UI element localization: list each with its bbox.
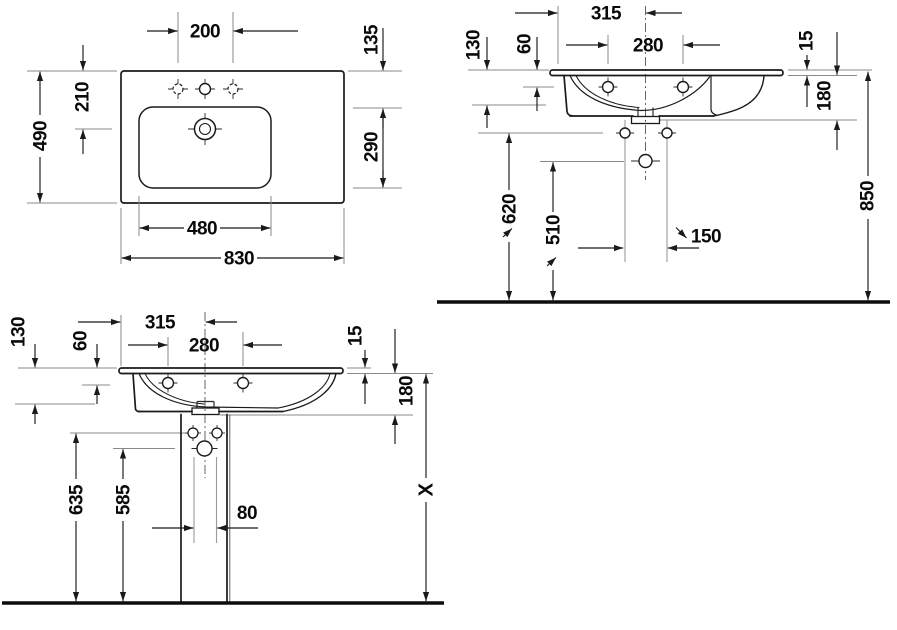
slope-arrow-ne-icon xyxy=(547,258,556,267)
slope-arrow-ne-icon xyxy=(503,229,512,238)
dim-830-label: 830 xyxy=(224,249,254,270)
dim-15-label: 15 xyxy=(797,30,818,51)
dim-180-label: 180 xyxy=(815,81,836,111)
dim-135-label: 135 xyxy=(362,24,383,55)
drain-flange xyxy=(192,408,219,415)
dim-315-label: 315 xyxy=(145,313,176,334)
wall-connection-points xyxy=(616,120,676,262)
dim-510-label: 510 xyxy=(544,215,565,245)
technical-drawing-page: 200 135 290 210 490 480 830 xyxy=(0,0,897,630)
pedestal-column xyxy=(181,415,230,602)
dim-635-label: 635 xyxy=(67,484,88,515)
waste-outlet xyxy=(639,155,652,168)
dim-290-label: 290 xyxy=(362,132,383,162)
dim-15-label: 15 xyxy=(346,325,367,346)
tap-holes xyxy=(168,79,243,99)
drain xyxy=(188,113,222,145)
dim-315-label: 315 xyxy=(591,4,622,25)
dim-130-label: 130 xyxy=(9,317,30,347)
dim-490-label: 490 xyxy=(31,121,52,151)
washbasin-dimension-diagram: 200 135 290 210 490 480 830 xyxy=(0,0,897,630)
wall-mount-view: 315 280 130 60 15 180 620 510 xyxy=(437,4,890,303)
dim-210-label: 210 xyxy=(73,82,94,112)
slope-arrow-se-icon xyxy=(676,228,687,239)
dim-80-label: 80 xyxy=(237,503,257,524)
plan-view: 200 135 290 210 490 480 830 xyxy=(27,12,402,270)
dim-130-label: 130 xyxy=(464,30,485,60)
wall-basin xyxy=(550,70,783,124)
wall-extension-lines xyxy=(468,6,872,162)
dim-280-label: 280 xyxy=(189,336,219,357)
dim-280-label: 280 xyxy=(633,36,663,57)
dim-620-label: 620 xyxy=(500,194,521,224)
dim-480-label: 480 xyxy=(187,219,217,240)
plan-dimensions: 200 135 290 210 490 480 830 xyxy=(31,22,384,270)
dim-585-label: 585 xyxy=(114,484,135,515)
waste-outlet xyxy=(197,441,212,456)
dim-200-label: 200 xyxy=(190,22,220,43)
dim-850-label: 850 xyxy=(858,181,879,211)
wall-dimensions: 315 280 130 60 15 180 620 510 xyxy=(464,4,879,301)
pedestal-basin xyxy=(119,368,343,415)
dim-180-label: 180 xyxy=(397,376,418,406)
pedestal-dimensions: 315 280 130 60 15 180 635 585 X xyxy=(9,313,438,602)
dim-150-label: 150 xyxy=(691,227,721,248)
dim-X-label: X xyxy=(416,482,438,496)
dim-60-label: 60 xyxy=(71,331,92,351)
pedestal-view: 315 280 130 60 15 180 635 585 X xyxy=(2,312,444,603)
dim-60-label: 60 xyxy=(515,34,536,54)
